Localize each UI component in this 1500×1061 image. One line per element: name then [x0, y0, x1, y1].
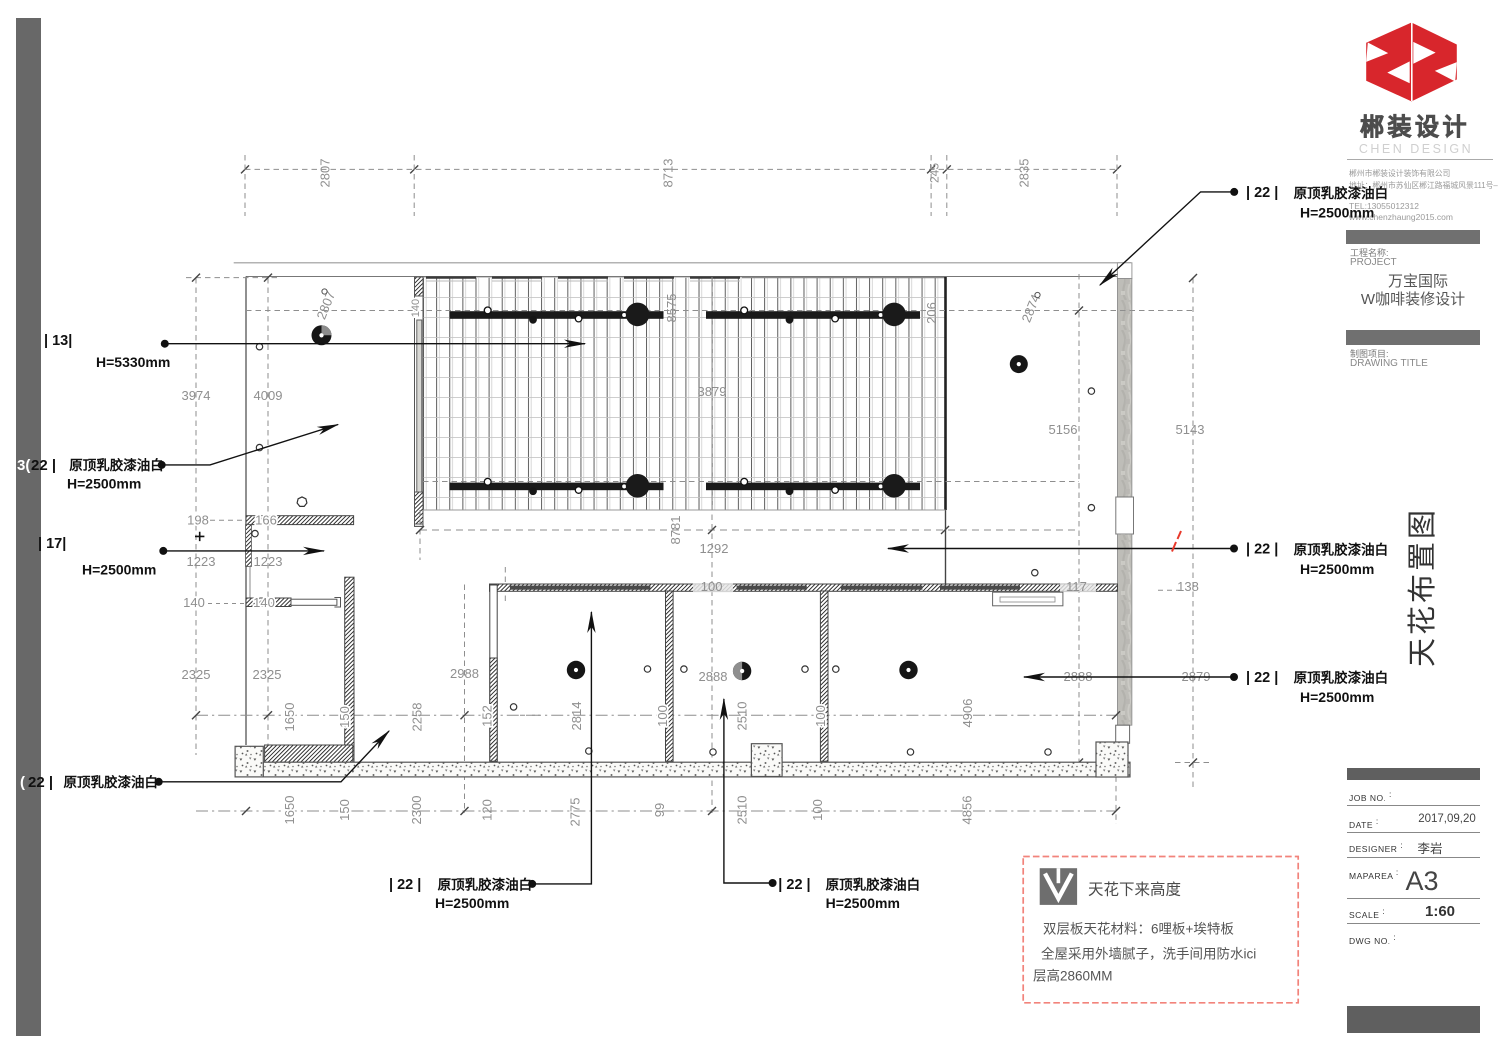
svg-text:150: 150 [337, 706, 352, 728]
svg-text:138: 138 [1177, 579, 1199, 594]
svg-text:150: 150 [337, 799, 352, 821]
svg-text:99: 99 [652, 803, 667, 817]
svg-text:1292: 1292 [700, 541, 729, 556]
svg-text:2888: 2888 [1064, 669, 1093, 684]
svg-text:1650: 1650 [282, 703, 297, 732]
svg-text:4906: 4906 [960, 699, 975, 728]
svg-text:2325: 2325 [182, 667, 211, 682]
svg-text:2835: 2835 [1016, 159, 1031, 188]
svg-text:100: 100 [655, 705, 670, 727]
svg-text:2807: 2807 [313, 289, 338, 321]
svg-text:2988: 2988 [450, 666, 479, 681]
svg-text:| 17|: | 17| [38, 536, 66, 552]
svg-text:双层板天花材料：6哩板+埃特板: 双层板天花材料：6哩板+埃特板 [1043, 922, 1234, 937]
svg-text:8575: 8575 [664, 294, 679, 323]
svg-text:5143: 5143 [1176, 422, 1205, 437]
svg-text:206: 206 [924, 302, 939, 324]
svg-text:2300: 2300 [409, 796, 424, 825]
svg-text:2325: 2325 [253, 667, 282, 682]
svg-text:8713: 8713 [660, 159, 675, 188]
svg-text:2874: 2874 [1018, 292, 1043, 324]
svg-text:原顶乳胶漆油白: 原顶乳胶漆油白 [438, 877, 532, 893]
svg-text:原顶乳胶漆油白: 原顶乳胶漆油白 [64, 774, 159, 790]
svg-text:H=2500mm: H=2500mm [826, 895, 900, 911]
svg-text:140: 140 [183, 595, 205, 610]
svg-text:2510: 2510 [735, 796, 750, 825]
svg-text:| 13|: | 13| [44, 333, 72, 349]
svg-text:2888: 2888 [699, 669, 728, 684]
svg-text:4009: 4009 [254, 388, 283, 403]
svg-text:166: 166 [255, 513, 277, 528]
svg-text:H=5330mm: H=5330mm [96, 354, 170, 370]
svg-text:198: 198 [187, 513, 209, 528]
svg-text:100: 100 [810, 799, 825, 821]
svg-text:2814: 2814 [569, 702, 584, 731]
svg-text:117: 117 [1066, 579, 1087, 594]
svg-text:4856: 4856 [960, 796, 975, 825]
svg-text:H=2500mm: H=2500mm [82, 562, 156, 578]
svg-text:原顶乳胶漆油白: 原顶乳胶漆油白 [826, 877, 921, 893]
svg-text:2775: 2775 [568, 798, 583, 827]
svg-text:| 22 |: | 22 | [389, 877, 421, 893]
svg-text:120: 120 [480, 799, 495, 821]
svg-text:152: 152 [480, 705, 495, 727]
svg-text:2807: 2807 [318, 159, 333, 188]
svg-text:全屋采用外墙腻子，洗手间用防水ici: 全屋采用外墙腻子，洗手间用防水ici [1041, 946, 1256, 962]
svg-text:2510: 2510 [735, 702, 750, 731]
svg-text:3879: 3879 [698, 384, 727, 399]
svg-text:1650: 1650 [282, 796, 297, 825]
svg-text:2879: 2879 [1182, 669, 1211, 684]
svg-text:层高2860MM: 层高2860MM [1033, 968, 1113, 984]
svg-text:2258: 2258 [409, 703, 424, 732]
svg-text:140: 140 [253, 595, 275, 610]
svg-text:| 22 |: | 22 | [1246, 542, 1278, 558]
svg-text:8781: 8781 [668, 516, 683, 545]
svg-text:| 22 |: | 22 | [1246, 670, 1278, 686]
svg-text:天花下来高度: 天花下来高度 [1088, 881, 1181, 899]
svg-text:245: 245 [928, 163, 942, 183]
svg-text:H=2500mm: H=2500mm [67, 476, 141, 492]
svg-text:1223: 1223 [254, 554, 283, 569]
svg-text:H=2500mm: H=2500mm [435, 895, 509, 911]
svg-text:原顶乳胶漆油白: 原顶乳胶漆油白 [69, 457, 164, 473]
svg-text:| 22 |: | 22 | [1246, 185, 1278, 201]
svg-text:| 22 |: | 22 | [778, 877, 810, 893]
svg-text:100: 100 [813, 705, 828, 727]
svg-text:3974: 3974 [182, 388, 211, 403]
svg-text:5156: 5156 [1049, 422, 1078, 437]
svg-text:140: 140 [410, 299, 422, 317]
svg-text:1650: 1650 [282, 796, 297, 825]
svg-text:1223: 1223 [187, 554, 216, 569]
svg-text:100: 100 [701, 579, 723, 594]
